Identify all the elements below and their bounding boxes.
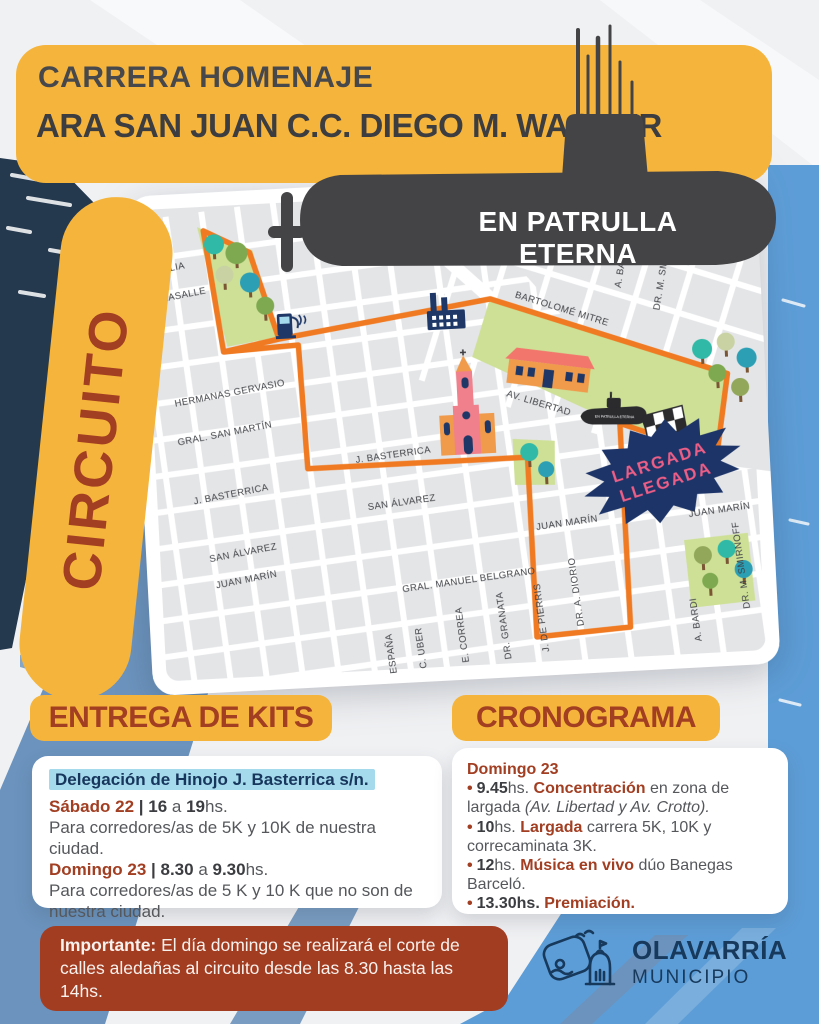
schedule-heading: CRONOGRAMA (452, 695, 720, 741)
kits-card: Delegación de Hinojo J. Basterrica s/n. … (32, 756, 442, 908)
schedule-item: •10hs. Largada carrera 5K, 10K y correca… (467, 818, 773, 856)
circuit-label: CIRCUITO (50, 304, 141, 593)
important-label: Importante: (60, 935, 156, 955)
race-poster: EN PATRULLA ETERNA LARGADA LLEGADA (0, 0, 819, 1024)
title-banner: CARRERA HOMENAJE ARA SAN JUAN C.C. DIEGO… (16, 45, 772, 183)
submarine-motto: EN PATRULLA ETERNA (428, 206, 728, 270)
schedule-item: •12hs. Música en vivo dúo Banegas Barcel… (467, 856, 773, 894)
kits-slot-2-desc: Para corredores/as de 5 K y 10 K que no … (49, 880, 425, 922)
kits-slot-2-time: Domingo 23 | 8.30 a 9.30hs. (49, 859, 425, 880)
schedule-card: Domingo 23 •9.45hs. Concentración en zon… (452, 748, 788, 914)
municipio-logo-icon (540, 924, 622, 1000)
important-notice: Importante: El día domingo se realizará … (40, 926, 508, 1011)
schedule-item: •9.45hs. Concentración en zona de largad… (467, 779, 773, 817)
kits-heading: ENTREGA DE KITS (30, 695, 332, 741)
title-line-2: ARA SAN JUAN C.C. DIEGO M. WAGNER (36, 107, 662, 145)
kits-location: Delegación de Hinojo J. Basterrica s/n. (49, 769, 425, 790)
logo-subtitle: MUNICIPIO (632, 967, 787, 989)
schedule-day: Domingo 23 (467, 760, 773, 779)
kits-slot-1-time: Sábado 22 | 16 a 19hs. (49, 796, 425, 817)
kits-slot-1-desc: Para corredores/as de 5K y 10K de nuestr… (49, 817, 425, 859)
schedule-heading-label: CRONOGRAMA (476, 701, 696, 735)
logo-city-name: OLAVARRÍA (632, 935, 787, 966)
monument-label: EN PATRULLA ETERNA (595, 415, 635, 420)
municipality-logo: OLAVARRÍA MUNICIPIO (540, 920, 800, 1004)
title-line-1: CARRERA HOMENAJE (38, 61, 373, 95)
kits-heading-label: ENTREGA DE KITS (49, 701, 314, 735)
schedule-item: •13.30hs. Premiación. (467, 894, 773, 913)
